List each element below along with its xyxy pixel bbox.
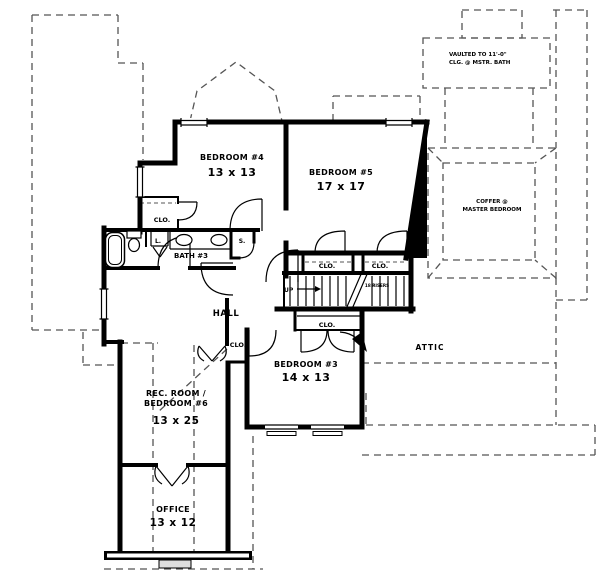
bath-fixtures (106, 230, 232, 268)
office-doors (155, 466, 189, 486)
vaulted-note-line1: VAULTED TO 11'-0" (449, 52, 507, 58)
bedroom3-label: BEDROOM #3 (274, 360, 338, 369)
closet-label: CLO. (319, 321, 336, 329)
bedroom5-closet-door-right (377, 231, 407, 253)
stairs (290, 272, 404, 309)
window (265, 423, 298, 436)
vaulted-note-line2: CLG. @ MSTR. BATH (449, 60, 511, 66)
stairs-risers-note: 18 RISERS (365, 283, 389, 288)
window (311, 423, 344, 436)
coffer-note-line2: MASTER BEDROOM (463, 207, 522, 213)
bathtub-inner (109, 236, 122, 265)
linen-label: L. (155, 238, 161, 245)
stair-break-lines (346, 272, 368, 309)
bedroom3-hall-door (249, 330, 276, 356)
closet-label: CLO. (230, 341, 247, 349)
bedroom4-closet-walls (140, 197, 178, 230)
master-bedroom-outline (428, 148, 556, 278)
bedroom3-dims: 14 x 13 (282, 371, 331, 384)
bath3-label: BATH #3 (174, 252, 208, 260)
floor-plan-page: BEDROOM #4 13 x 13 BEDROOM #5 17 x 17 CL… (0, 0, 600, 573)
closet-label: CLO. (319, 262, 336, 270)
closet-label: CLO. (154, 216, 171, 224)
up-arrow-head (315, 286, 321, 292)
closet-label: CLO. (372, 262, 389, 270)
rec-room-label-line2: BEDROOM #6 (144, 399, 208, 408)
bedroom4-closet-door (178, 202, 197, 220)
stair-treads-upper (372, 276, 404, 306)
window (100, 289, 109, 319)
shower-label: S. (239, 238, 246, 245)
hall-label: HALL (213, 309, 240, 319)
stairs-up-label: UP (284, 287, 294, 294)
rec-room-dims: 13 x 25 (153, 415, 200, 427)
floor-plan-drawing: BEDROOM #4 13 x 13 BEDROOM #5 17 x 17 CL… (0, 0, 600, 573)
sink-icon (211, 235, 227, 246)
office-dims: 13 x 12 (150, 517, 197, 529)
bedroom5-label: BEDROOM #5 (309, 168, 373, 177)
window (136, 167, 145, 197)
toilet-bowl-icon (129, 239, 140, 252)
toilet-tank-icon (127, 231, 141, 238)
window (181, 118, 207, 127)
entry-step (159, 560, 191, 568)
attic-label: ATTIC (416, 343, 445, 352)
bedroom5-closet-door-left (315, 231, 345, 253)
rec-room-label-line1: REC. ROOM / (146, 389, 206, 398)
bedroom5-dims: 17 x 17 (317, 180, 366, 193)
bedroom4-dims: 13 x 13 (208, 166, 257, 179)
front-bay-roof-dashed (190, 62, 282, 121)
bedroom4-door (230, 199, 262, 231)
office-label: OFFICE (156, 505, 190, 514)
window (386, 118, 412, 127)
coffer-note-line1: COFFER @ (476, 199, 508, 205)
bedroom4-label: BEDROOM #4 (200, 153, 264, 162)
sink-icon (176, 235, 192, 246)
